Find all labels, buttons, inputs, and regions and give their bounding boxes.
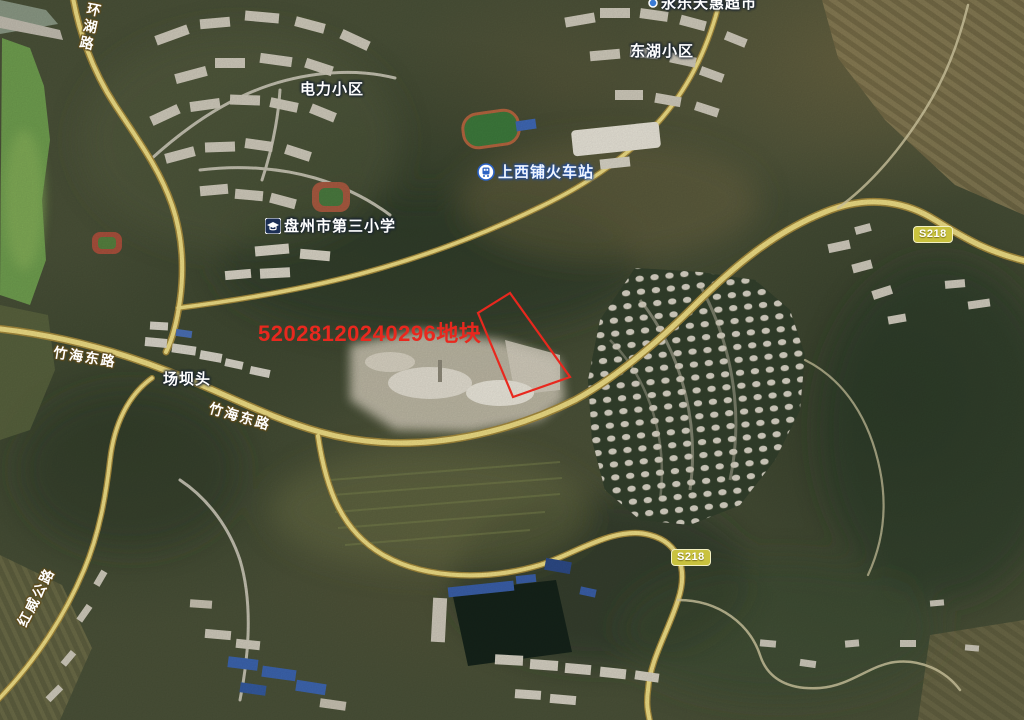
parcel-polygon [478,293,570,397]
train-station-icon [477,163,495,181]
parcel-outline [0,0,1024,720]
place-dianli[interactable]: 电力小区 [300,78,364,99]
route-badge-s218-south: S218 [671,549,711,566]
poi-supermarket-label: 永乐天惠超市 [661,0,757,13]
parcel-label: 52028120240296地块 [258,316,481,348]
train-station-label: 上西铺火车站 [498,161,594,182]
poi-school[interactable]: 盘州市第三小学 [265,215,396,236]
school-label: 盘州市第三小学 [284,215,396,236]
school-icon [265,218,281,234]
poi-supermarket[interactable]: 永乐天惠超市 [648,0,757,13]
place-changbatou[interactable]: 场坝头 [163,368,211,389]
route-badge-s218-northeast: S218 [913,226,953,243]
place-donghu[interactable]: 东湖小区 [630,40,694,61]
poi-dot-icon [648,0,658,8]
satellite-map[interactable]: 52028120240296地块 永乐天惠超市 东湖小区 电力小区 上西铺火车站 [0,0,1024,720]
poi-train-station[interactable]: 上西铺火车站 [477,161,594,182]
